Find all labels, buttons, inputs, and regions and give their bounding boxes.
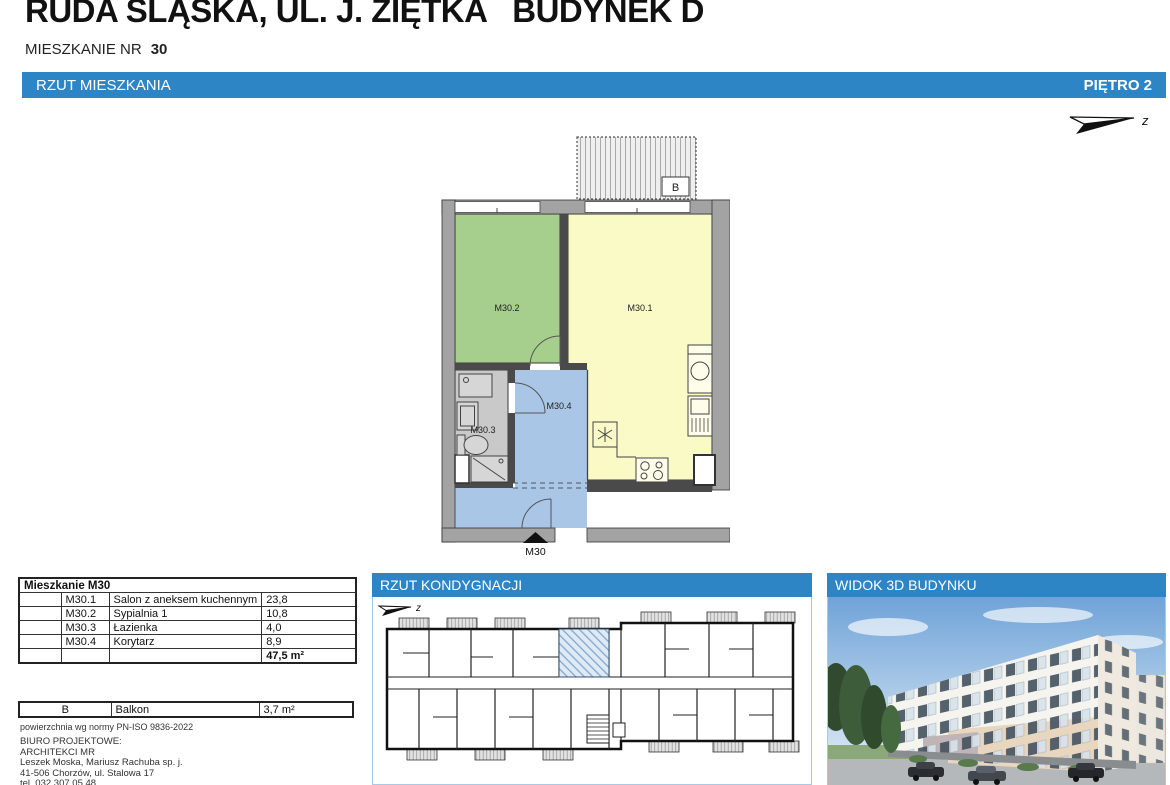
balcony: B [577, 137, 696, 199]
office-label: BIURO PROJEKTOWE: [20, 737, 183, 748]
room-name: Salon z aneksem kuchennym [109, 593, 262, 607]
design-office-block: BIURO PROJEKTOWE: ARCHITEKCI MR Leszek M… [20, 737, 183, 785]
room-name: Sypialnia 1 [109, 607, 262, 621]
table-row: M30.1Salon z aneksem kuchennym23,8 [19, 593, 356, 607]
room-code: M30.1 [61, 593, 109, 607]
highlighted-apartment [559, 629, 609, 677]
far-building [1133, 675, 1165, 763]
building-3d-panel: WIDOK 3D BUDYNKU [827, 573, 1166, 785]
page-title: RUDA ŚLĄSKA, UL. J. ZIĘTKA BUDYNEK D [25, 0, 704, 30]
balcony-table: B Balkon 3,7 m² [18, 701, 354, 718]
balcony-code: B [19, 702, 111, 717]
duct-shaft-left [455, 455, 469, 483]
section-bar: RZUT MIESZKANIA PIĘTRO 2 [22, 72, 1166, 98]
area-table-title: Mieszkanie M30 [19, 578, 356, 593]
label-living: M30.1 [627, 303, 652, 313]
label-bedroom: M30.2 [494, 303, 519, 313]
balcony-name: Balkon [111, 702, 259, 717]
apartment-floorplan: B [438, 130, 730, 560]
area-table: Mieszkanie M30 M30.1Salon z aneksem kuch… [18, 577, 357, 664]
total-area: 47,5 m² [262, 649, 356, 664]
table-row: B Balkon 3,7 m² [19, 702, 353, 717]
building-3d-panel-title: WIDOK 3D BUDYNKU [827, 573, 1166, 597]
duct-shaft-right [694, 455, 715, 485]
room-area: 10,8 [262, 607, 356, 621]
apartment-number: 30 [151, 41, 168, 58]
label-corridor: M30.4 [546, 401, 571, 411]
north-arrow-icon: z [1068, 106, 1156, 140]
room-name: Łazienka [109, 621, 262, 635]
north-arrow-small-label: z [415, 603, 421, 614]
table-row: M30.3Łazienka4,0 [19, 621, 356, 635]
room-name: Korytarz [109, 635, 262, 649]
balcony-label: B [672, 182, 679, 194]
room-area: 4,0 [262, 621, 356, 635]
floor-layout-panel: RZUT KONDYGNACJI z [372, 573, 812, 785]
north-arrow-small-icon: z [379, 603, 421, 616]
entrance-label: M30 [525, 546, 546, 558]
room-code: M30.2 [61, 607, 109, 621]
apartment-card-sheet: RUDA ŚLĄSKA, UL. J. ZIĘTKA BUDYNEK D MIE… [0, 0, 1170, 785]
apartment-number-line: MIESZKANIE NR30 [25, 41, 167, 58]
room-area: 8,9 [262, 635, 356, 649]
room-area: 23,8 [262, 593, 356, 607]
norm-note: powierzchnia wg normy PN-ISO 9836-2022 [20, 722, 193, 732]
floor-layout-panel-title: RZUT KONDYGNACJI [372, 573, 812, 597]
table-total-row: 47,5 m² [19, 649, 356, 664]
label-bath: M30.3 [470, 425, 495, 435]
room-vestibule [455, 488, 515, 528]
table-row: M30.4Korytarz8,9 [19, 635, 356, 649]
floor-badge: PIĘTRO 2 [1084, 77, 1152, 94]
section-bar-left-label: RZUT MIESZKANIA [36, 77, 171, 94]
north-arrow-label: z [1141, 113, 1149, 128]
balcony-area: 3,7 m² [259, 702, 353, 717]
table-row: M30.2Sypialnia 110,8 [19, 607, 356, 621]
room-code: M30.3 [61, 621, 109, 635]
office-phone: tel. 032 307 05 48. [20, 779, 183, 785]
building-3d-view [828, 597, 1165, 785]
apartment-label: MIESZKANIE NR [25, 41, 142, 58]
floor-layout-plan: z [373, 597, 811, 785]
room-code: M30.4 [61, 635, 109, 649]
